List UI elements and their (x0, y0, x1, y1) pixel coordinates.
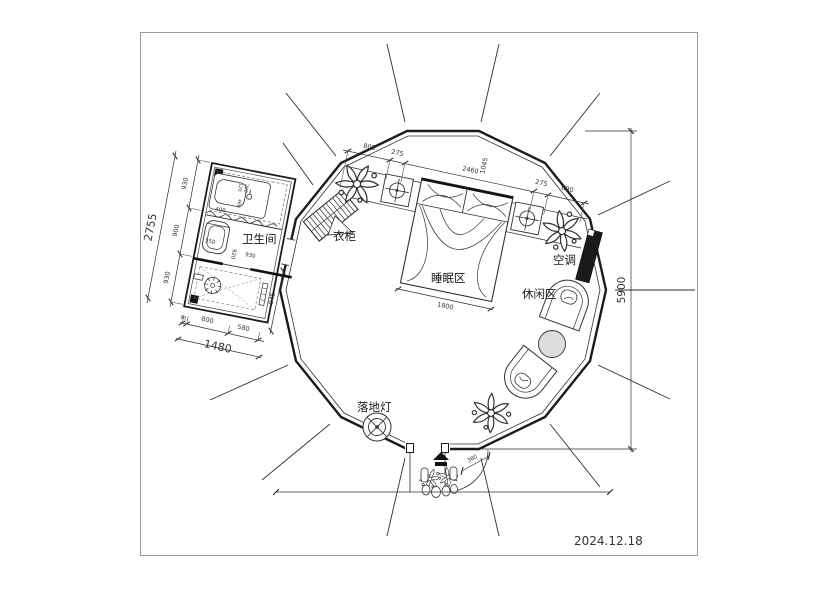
dim-bed-1800: 1800 (436, 300, 454, 311)
nightstand-right (511, 202, 544, 235)
door-jamb-right (442, 444, 449, 453)
entrance-arrow-icon (433, 452, 449, 466)
dim-height-5900: 5900 (616, 277, 628, 304)
dim-left-930a: 930 (180, 177, 190, 191)
column (190, 294, 199, 303)
armchair-upper (539, 274, 594, 331)
label-bathroom: 卫生间 (242, 232, 277, 246)
door-jamb-left (407, 444, 414, 453)
plant-bottom (464, 386, 519, 441)
dim-left-930b: 930 (162, 271, 172, 285)
floor-plan-svg: 550 920 930 400 460 120 290 (0, 0, 837, 592)
dim-top-275a: 275 (391, 148, 405, 158)
entrance-plants (420, 464, 462, 498)
dim-bath-90: 90 (180, 314, 187, 321)
side-table (539, 331, 566, 358)
date-stamp: 2024.12.18 (574, 534, 643, 548)
label-leisure-area: 休闲区 (522, 287, 557, 301)
label-sleeping-area: 睡眠区 (431, 271, 466, 285)
dim-top-2460: 2460 (461, 164, 479, 175)
label-air-conditioner: 空调 (553, 253, 576, 267)
dim-bath-800: 800 (201, 315, 215, 325)
dim-top-1045: 1045 (478, 157, 489, 175)
dim-bath-total-1480: 1480 (203, 337, 233, 356)
dim-bath-580: 580 (237, 323, 251, 333)
label-wardrobe: 衣柜 (333, 229, 356, 243)
dim-top-275b: 275 (535, 178, 549, 188)
dim-bath-right-945: 945 (267, 292, 277, 306)
floor-lamp (363, 413, 391, 441)
floor-plan-canvas: 550 920 930 400 460 120 290 (0, 0, 837, 592)
label-floor-lamp: 落地灯 (357, 400, 392, 414)
dim-left-900: 900 (171, 224, 181, 238)
dim-left-total-2755: 2755 (141, 212, 159, 242)
